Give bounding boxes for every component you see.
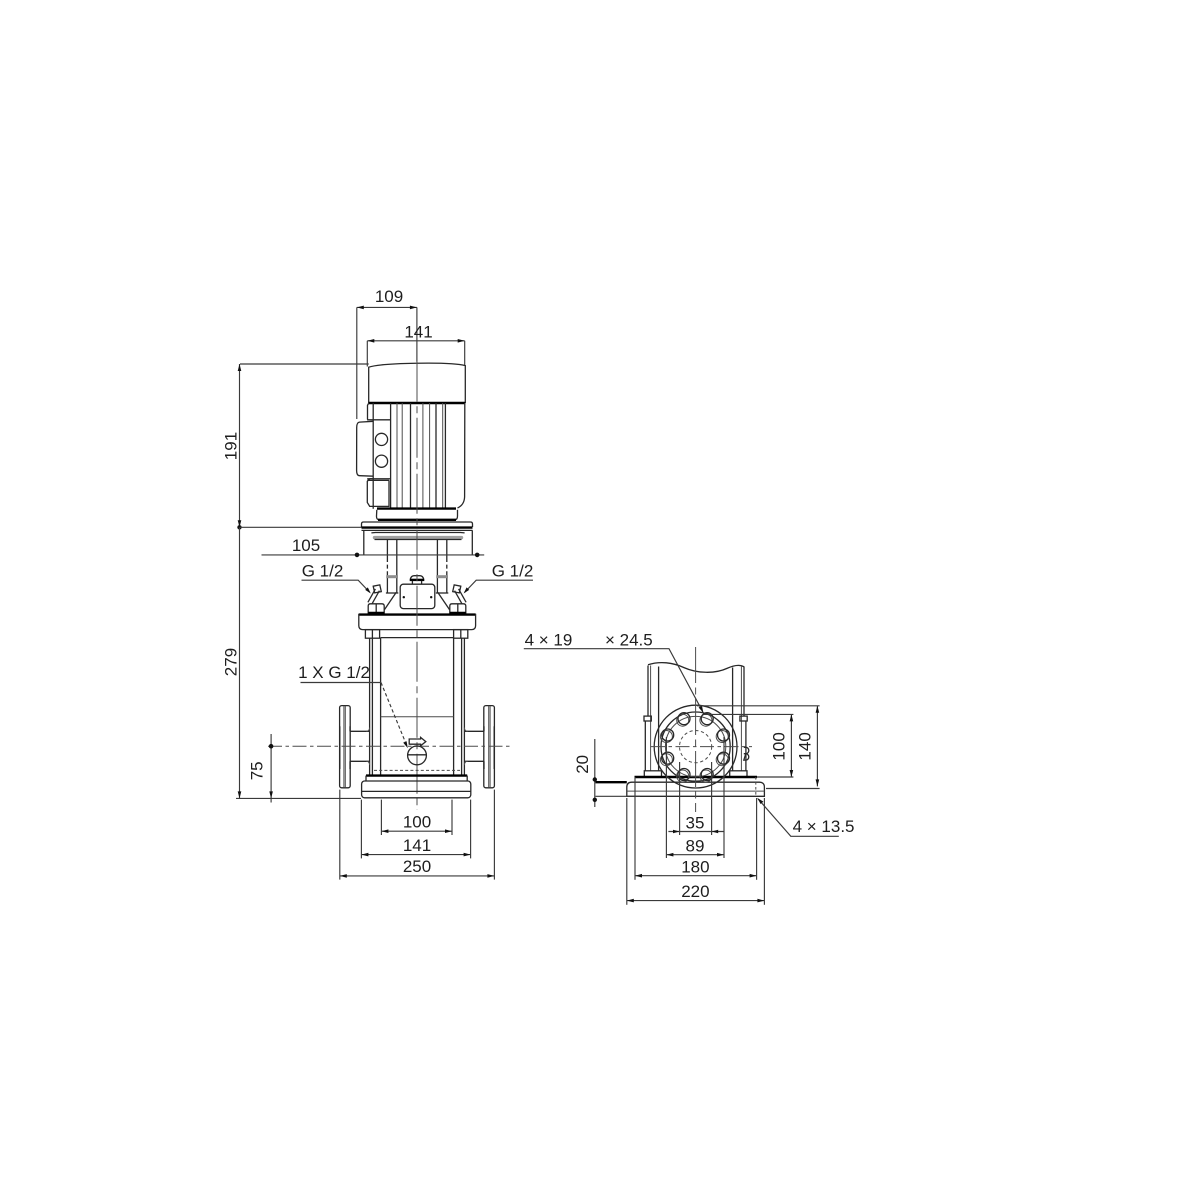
svg-text:20: 20 — [573, 755, 592, 774]
svg-text:35: 35 — [686, 813, 705, 832]
svg-text:89: 89 — [686, 836, 705, 855]
svg-text:100: 100 — [770, 732, 789, 760]
svg-text:220: 220 — [681, 882, 709, 901]
svg-text:75: 75 — [247, 761, 266, 780]
svg-text:100: 100 — [403, 813, 431, 832]
svg-text:105: 105 — [292, 536, 320, 555]
svg-text:180: 180 — [681, 858, 709, 877]
svg-text:250: 250 — [403, 857, 431, 876]
svg-text:1 X G 1/2: 1 X G 1/2 — [298, 663, 370, 682]
svg-text:191: 191 — [221, 432, 240, 460]
svg-text:141: 141 — [403, 836, 431, 855]
svg-text:4 × 13.5: 4 × 13.5 — [793, 817, 855, 836]
svg-text:× 24.5: × 24.5 — [605, 631, 653, 650]
svg-text:4 × 19: 4 × 19 — [525, 631, 573, 650]
svg-text:G 1/2: G 1/2 — [302, 562, 344, 581]
svg-text:141: 141 — [404, 323, 432, 342]
svg-text:140: 140 — [796, 732, 815, 760]
svg-text:109: 109 — [375, 287, 403, 306]
svg-text:279: 279 — [221, 648, 240, 676]
svg-text:G 1/2: G 1/2 — [492, 562, 534, 581]
